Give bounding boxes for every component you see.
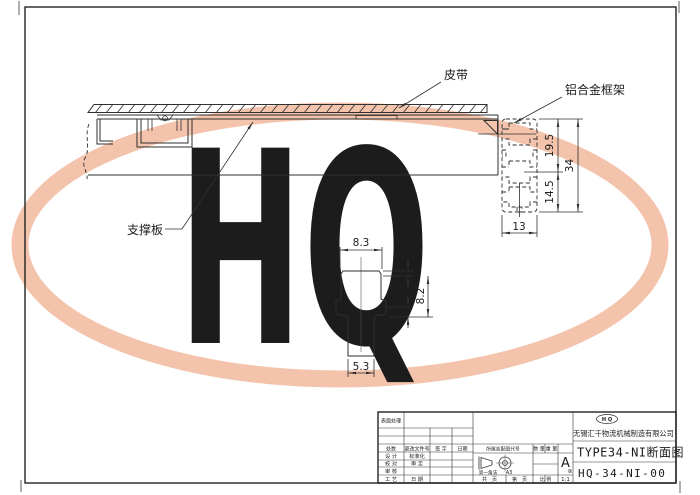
company-logo-text: H Q — [602, 417, 612, 423]
scale-value: 1:1 — [561, 477, 570, 483]
pages-index-label: 第 页 — [512, 476, 527, 483]
dim-19-5: 19.5 — [544, 134, 556, 157]
company-block: H Q 无锡汇千物流机械制造有限公司 TYPE34-NI断面图 HQ-34-NI… — [573, 415, 684, 481]
first-angle-projection-symbol — [479, 455, 514, 472]
surface-treatment-label: 表面处理 — [381, 418, 401, 425]
version-suffix: 版 — [568, 468, 572, 474]
rev-docno-label: 更改文件号 — [404, 446, 429, 453]
role-process: 工 艺 — [385, 476, 397, 483]
assembly-code-label: 所属装配图代号 — [486, 446, 520, 453]
dim-34: 34 — [564, 159, 576, 173]
role-review: 审 核 — [385, 467, 397, 475]
company-name: 无锡汇千物流机械制造有限公司 — [573, 429, 674, 438]
drawing-title: TYPE34-NI断面图 — [577, 445, 684, 460]
paper-size: A3 — [506, 470, 513, 476]
support-plate-label: 支撑板 — [127, 222, 163, 237]
pages-total-label: 共 页 — [482, 476, 497, 483]
drawing-number: HQ-34-NI-00 — [578, 467, 666, 480]
dim-1: 1 — [403, 244, 415, 251]
dim-2: 2 — [395, 309, 407, 316]
title-block: 表面处理 处数 更改文件号 签 字 日期 设 计 校 对 审 核 工 艺 标准化… — [378, 412, 684, 483]
hq-watermark-letters: HQ — [178, 95, 430, 407]
rev-count-label: 处数 — [386, 446, 396, 453]
role-rows: 设 计 校 对 审 核 工 艺 标准化 审 定 日 期 — [385, 452, 425, 483]
role-approval: 审 定 — [411, 460, 423, 468]
role-date: 日 期 — [411, 476, 423, 483]
engineering-drawing-sheet: HQ — [0, 0, 700, 495]
dim-13: 13 — [512, 221, 525, 233]
dim-5-3: 5.3 — [353, 361, 370, 373]
belt-label: 皮带 — [444, 68, 468, 82]
aluminum-frame-label: 铝合金框架 — [565, 82, 625, 97]
scale-label: 比 例 — [540, 476, 552, 483]
dim-14-5: 14.5 — [544, 180, 556, 203]
role-standardization: 标准化 — [409, 452, 425, 460]
quantity-label: 数 量 — [533, 446, 545, 453]
weight-label: 重 量 — [546, 446, 558, 453]
role-design: 设 计 — [385, 452, 397, 460]
revision-header-row: 处数 更改文件号 签 字 日期 — [386, 446, 468, 453]
dim-8-2: 8.2 — [415, 288, 427, 305]
pages-scale-row: 共 页 第 页 比 例 1:1 — [482, 476, 570, 483]
role-check: 校 对 — [385, 460, 397, 468]
rev-date-label: 日期 — [457, 447, 467, 453]
dim-8-3: 8.3 — [353, 237, 370, 249]
projection-method-label: 第一角法 — [479, 469, 498, 476]
rev-signature-label: 签 字 — [435, 446, 447, 453]
